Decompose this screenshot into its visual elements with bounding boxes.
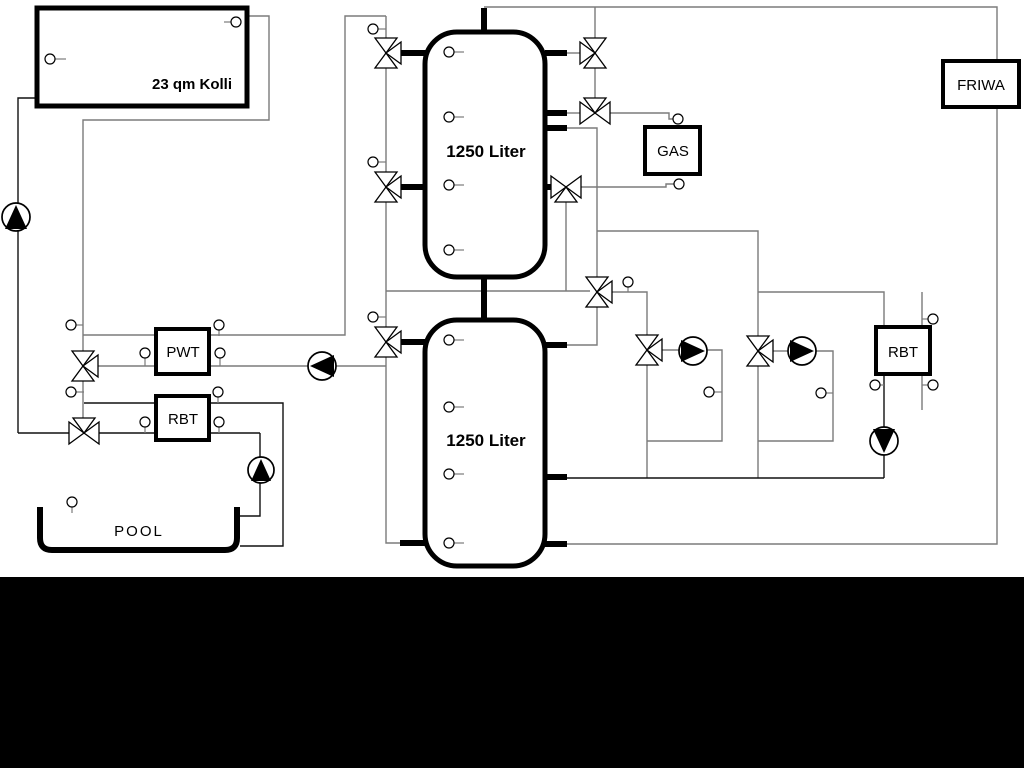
rbt-left-label: RBT <box>168 411 198 428</box>
gas-label: GAS <box>657 143 689 160</box>
gas-box: GAS <box>645 127 700 174</box>
bottom-black-band <box>0 577 1024 768</box>
friwa-label: FRIWA <box>957 77 1005 94</box>
pool-pump <box>248 457 274 483</box>
storage-tank-1: 1250 Liter <box>425 32 545 277</box>
pwt-box: PWT <box>156 329 209 374</box>
rbt-pump <box>870 427 898 455</box>
friwa-box: FRIWA <box>943 61 1019 107</box>
collector-label: 23 qm Kolli <box>152 76 232 93</box>
rbt-left-box: RBT <box>156 396 209 440</box>
rbt-right-label: RBT <box>888 344 918 361</box>
solar-pump <box>2 203 30 231</box>
pool-label: POOL <box>114 523 164 540</box>
hydraulic-schematic: POOL 23 qm Kolli PWT RBT GAS FRIWA RBT 1… <box>0 0 1024 768</box>
sensor-gas-bottom <box>674 179 684 189</box>
heating-circuit-pump-2 <box>788 337 816 365</box>
tank1-label: 1250 Liter <box>446 142 526 161</box>
sensor-gas-top <box>673 114 683 124</box>
tank2-label: 1250 Liter <box>446 431 526 450</box>
pwt-pump <box>308 352 336 380</box>
collector-box: 23 qm Kolli <box>37 8 247 106</box>
pwt-label: PWT <box>166 344 199 361</box>
rbt-right-box: RBT <box>876 327 930 374</box>
storage-tank-2: 1250 Liter <box>425 320 545 566</box>
heating-circuit-pump-1 <box>679 337 707 365</box>
